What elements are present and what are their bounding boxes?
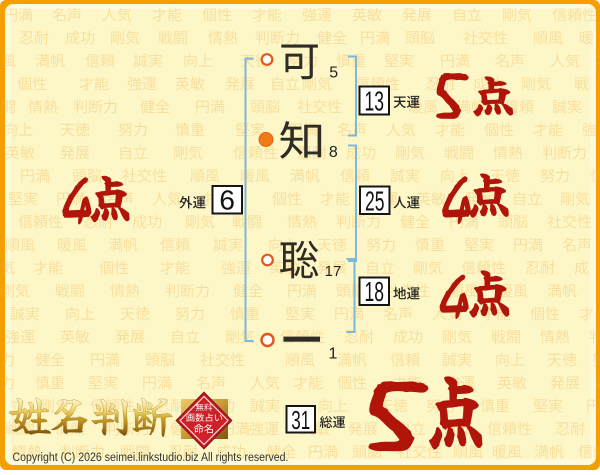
svg-text:5: 5	[329, 65, 338, 82]
svg-text:6: 6	[219, 185, 235, 216]
svg-text:18: 18	[364, 276, 384, 307]
svg-text:Copyright (C) 2026 seimei.link: Copyright (C) 2026 seimei.linkstudio.biz…	[13, 452, 289, 464]
svg-text:1: 1	[329, 346, 338, 363]
svg-text:31: 31	[291, 405, 310, 435]
svg-text:13: 13	[364, 86, 384, 117]
svg-text:17: 17	[325, 263, 342, 280]
svg-text:8: 8	[329, 144, 338, 161]
svg-text:25: 25	[365, 186, 385, 217]
